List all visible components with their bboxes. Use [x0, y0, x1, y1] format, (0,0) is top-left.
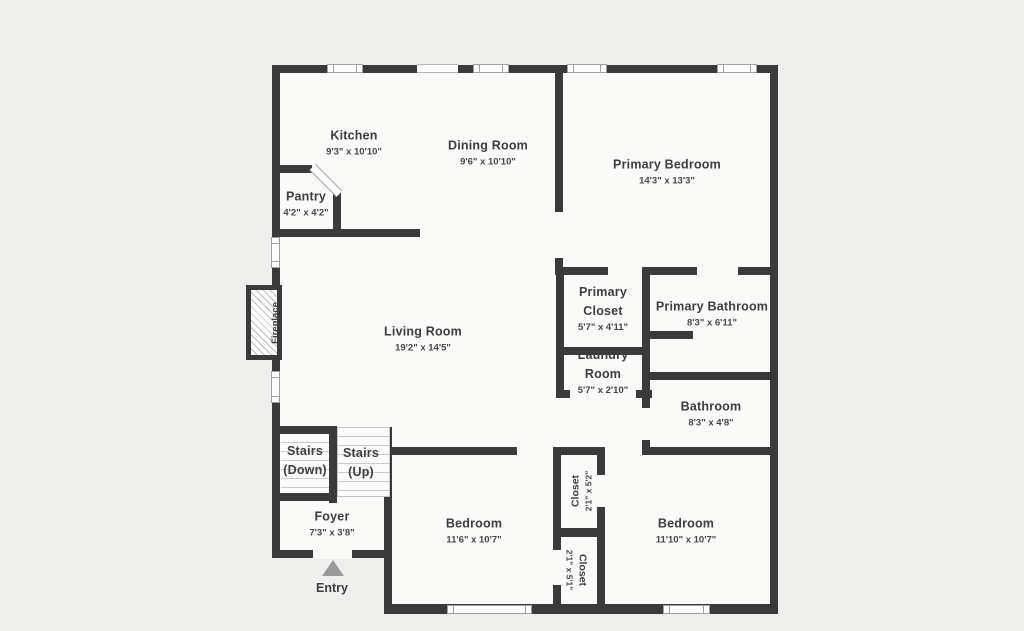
door-closet-top — [596, 475, 606, 507]
wall-pantry-top — [272, 165, 312, 173]
wall-hallway-south — [384, 447, 778, 455]
wall-closet-divider — [553, 528, 605, 537]
wall-exterior-bottom — [384, 604, 778, 614]
entry-label: Entry — [316, 581, 348, 595]
fireplace-label: Fireplace — [245, 302, 283, 344]
wall-closet-laundry-left — [556, 267, 564, 398]
window-bedroom-left — [447, 605, 532, 614]
door-bedroom-right — [605, 446, 642, 456]
window-primary-1 — [567, 64, 607, 73]
wall-closet-col-right — [597, 447, 605, 604]
wall-stairs-down-top — [277, 426, 337, 434]
wall-exterior-right — [770, 65, 778, 614]
stairs-down-treads — [281, 434, 329, 493]
window-living-1 — [271, 237, 280, 268]
wall-stairs-down-bottom — [277, 493, 337, 501]
door-bedroom-left — [517, 446, 553, 456]
door-primary-closet — [608, 266, 642, 276]
window-dining — [473, 64, 509, 73]
door-laundry — [570, 389, 636, 399]
window-bedroom-right — [663, 605, 710, 614]
wall-pantry-right — [333, 190, 341, 237]
floor-plan: Fireplace Entry Kitchen9'3" x 10'10"Dini… — [0, 0, 1024, 631]
wall-primary-bottom — [555, 267, 778, 275]
window-dining-opening — [417, 64, 458, 73]
door-bathroom — [641, 408, 651, 440]
window-kitchen — [327, 64, 363, 73]
floor-main — [280, 73, 770, 455]
fireplace: Fireplace — [246, 285, 282, 360]
door-primary-bathroom — [697, 266, 738, 276]
wall-kitchen-bottom — [272, 229, 420, 237]
wall-primary-bath-stub — [650, 331, 693, 339]
wall-primary-bath-bath — [650, 372, 778, 380]
door-closet-bottom — [552, 550, 562, 585]
door-entry-opening — [313, 549, 352, 559]
door-primary-bedroom — [554, 212, 564, 258]
wall-laundry-top — [556, 347, 647, 355]
wall-stairs-down-right — [329, 426, 337, 503]
stairs-up-treads — [337, 427, 390, 497]
window-living-2 — [271, 371, 280, 403]
window-primary-2 — [717, 64, 757, 73]
entry-arrow-icon — [322, 560, 344, 576]
